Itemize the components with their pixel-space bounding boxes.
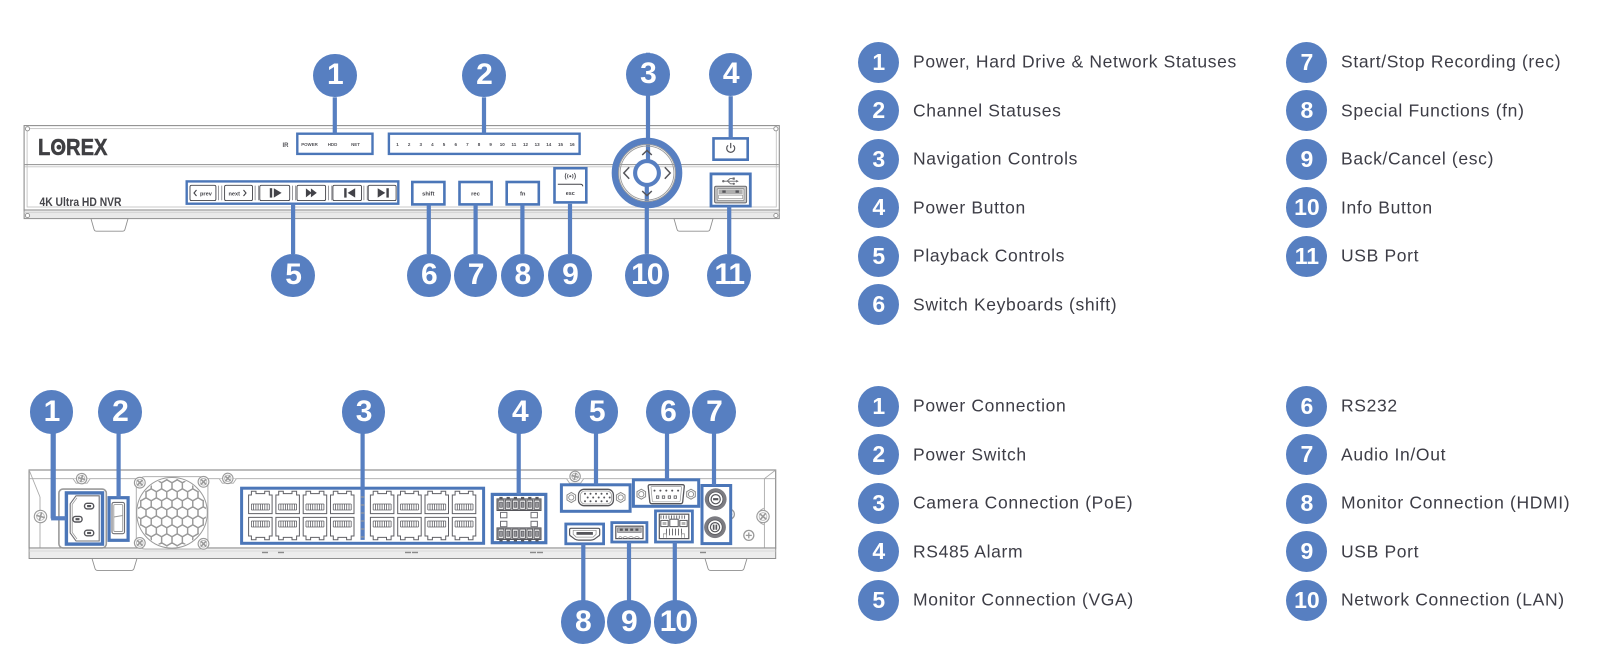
svg-text:13: 13 (535, 142, 541, 147)
svg-text:next: next (229, 191, 241, 197)
svg-text:HDD: HDD (328, 142, 338, 147)
svg-text:rec: rec (471, 192, 480, 198)
svg-text:shift: shift (422, 192, 434, 198)
svg-text:prev: prev (200, 191, 213, 197)
svg-text:14: 14 (546, 142, 552, 147)
svg-text:IR: IR (283, 143, 290, 149)
svg-text:LOREX: LOREX (38, 134, 108, 160)
svg-text:16: 16 (570, 142, 576, 147)
svg-text:NET: NET (351, 142, 360, 147)
svg-text:POWER: POWER (301, 142, 318, 147)
svg-text:10: 10 (500, 142, 506, 147)
svg-text:esc: esc (566, 191, 575, 197)
svg-text:12: 12 (523, 142, 529, 147)
svg-text:fn: fn (520, 192, 526, 198)
svg-text:15: 15 (558, 142, 564, 147)
svg-text:11: 11 (512, 142, 517, 147)
svg-text:4K Ultra HD NVR: 4K Ultra HD NVR (40, 195, 122, 209)
